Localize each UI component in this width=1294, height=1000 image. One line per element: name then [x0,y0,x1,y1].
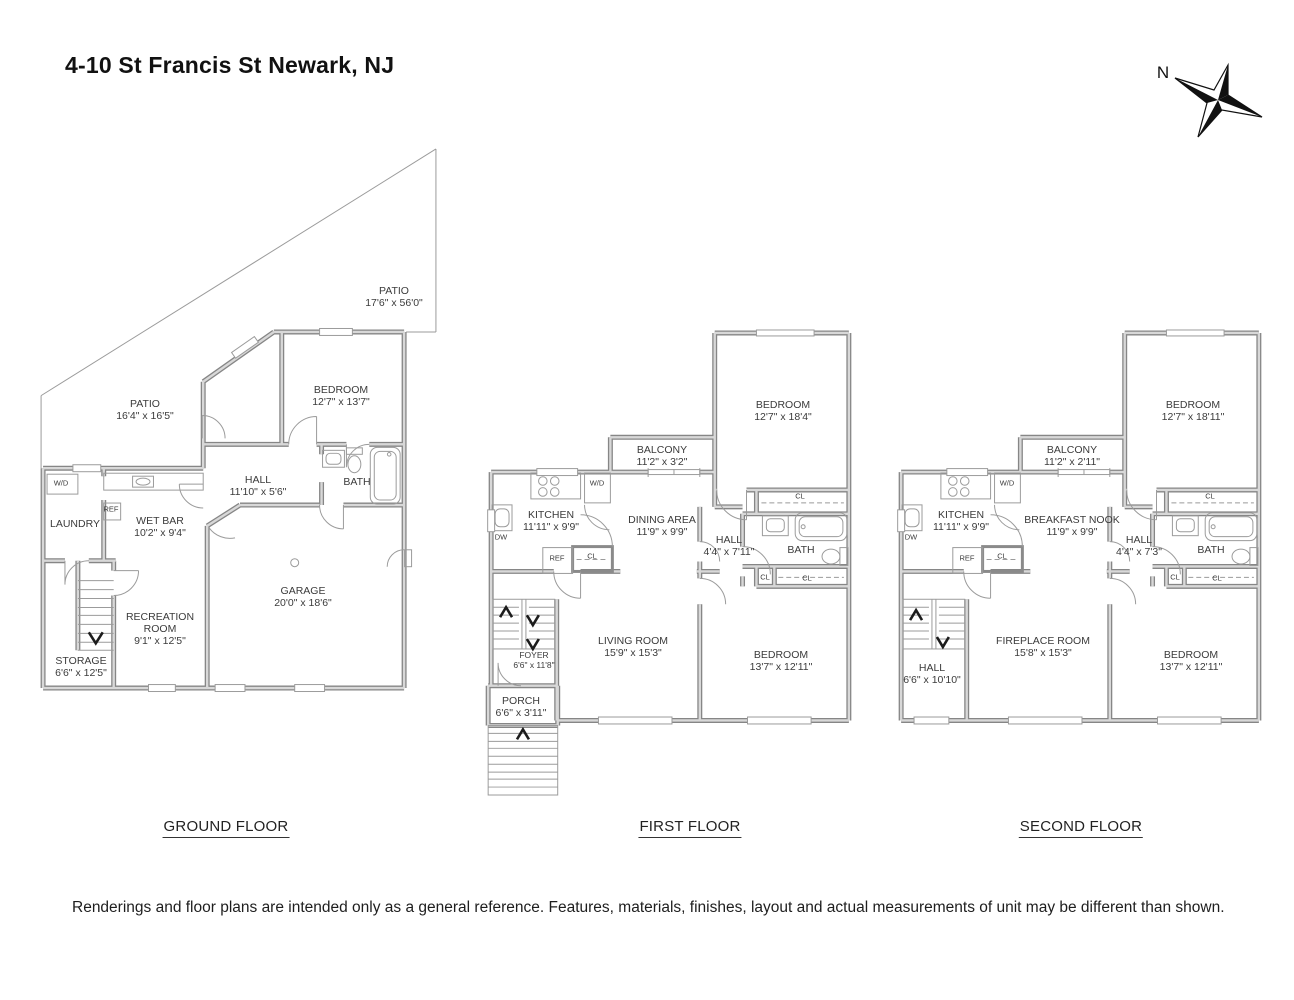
garage-light [291,559,299,567]
room-label-foyer: FOYER6'6" x 11'8" [513,650,554,670]
room-label-laundry: LAUNDRY [50,518,100,530]
room-label-wet-bar: WET BAR10'2" x 9'4" [134,515,186,539]
room-label-bath: BATH [343,476,370,488]
room-label-balcony: BALCONY11'2" x 2'11" [1044,444,1100,468]
room-label-bath: BATH [1197,544,1224,556]
fixture-label-wd: W/D [54,479,69,488]
room-label-patio-side: PATIO16'4" x 16'5" [116,398,174,422]
floor-plan-page: 4-10 St Francis St Newark, NJ N [0,0,1294,1000]
floor-title-first: FIRST FLOOR [638,818,741,838]
page-title: 4-10 St Francis St Newark, NJ [65,52,394,79]
fixture-label-cl: CL [1205,492,1215,501]
first-floor-plan [485,327,855,797]
fixture-label-cl: CL [795,492,805,501]
room-label-hall: HALL4'4" x 7'3" [1116,534,1162,558]
stairs-up-arrow [517,729,529,739]
room-label-dining-area: DINING AREA11'9" x 9'9" [628,514,696,538]
room-label-recreation-room: RECREATION ROOM9'1" x 12'5" [116,611,204,647]
room-label-balcony: BALCONY11'2" x 3'2" [637,444,688,468]
stairs-down-arrow [527,615,539,625]
room-label-hall-lower: HALL6'6" x 10'10" [903,662,961,686]
room-label-fireplace-room: FIREPLACE ROOM15'8" x 15'3" [996,635,1090,659]
fixture-label-dw: DW [495,533,508,542]
fixture-label-cl: CL [1170,573,1180,582]
fixture-label-wd: W/D [1000,479,1015,488]
stairs-down-arrow [937,637,949,647]
room-label-bedroom: BEDROOM12'7" x 18'11" [1162,399,1225,423]
fixture-label-cl: CL [997,552,1007,561]
disclaimer-text: Renderings and floor plans are intended … [72,898,1240,918]
fixture-label-cl: CL [1212,574,1222,583]
stairs-down-arrow [89,632,103,643]
second-floor-plan [895,327,1265,797]
fixture-label-dw: DW [905,533,918,542]
fixture-label-wd: W/D [590,479,605,488]
fixture-label-cl: CL [587,552,597,561]
fixture-label-cl: CL [802,574,812,583]
room-label-storage: STORAGE6'6" x 12'5" [55,655,107,679]
fixture-label-ref: REF [960,554,975,563]
room-label-bedroom: BEDROOM12'7" x 18'4" [754,399,812,423]
room-label-hall: HALL4'4" x 7'11" [704,534,755,558]
fixture-label-ref: REF [550,554,565,563]
room-label-bedroom: BEDROOM13'7" x 12'11" [750,649,813,673]
room-label-kitchen: KITCHEN11'11" x 9'9" [523,509,579,533]
stairs-down-arrow [527,639,539,649]
floor-title-second: SECOND FLOOR [1019,818,1143,838]
room-label-patio-rear: PATIO17'6" x 56'0" [365,285,423,309]
room-label-porch: PORCH6'6" x 3'11" [496,695,547,719]
room-label-bedroom: BEDROOM12'7" x 13'7" [312,384,370,408]
room-label-living-room: LIVING ROOM15'9" x 15'3" [598,635,668,659]
fixture-label-ref: REF [104,505,119,514]
room-label-bath: BATH [787,544,814,556]
room-label-kitchen: KITCHEN11'11" x 9'9" [933,509,989,533]
compass-north-label: N [1157,63,1169,83]
room-label-bedroom: BEDROOM13'7" x 12'11" [1160,649,1223,673]
fixture-label-cl: CL [760,573,770,582]
room-label-hall: HALL11'10" x 5'6" [230,474,287,498]
room-label-garage: GARAGE20'0" x 18'6" [274,585,332,609]
floor-title-ground: GROUND FLOOR [163,818,290,838]
toilet-icon [346,448,362,454]
ground-floor-plan [38,143,442,695]
room-label-breakfast-nook: BREAKFAST NOOK11'9" x 9'9" [1024,514,1120,538]
